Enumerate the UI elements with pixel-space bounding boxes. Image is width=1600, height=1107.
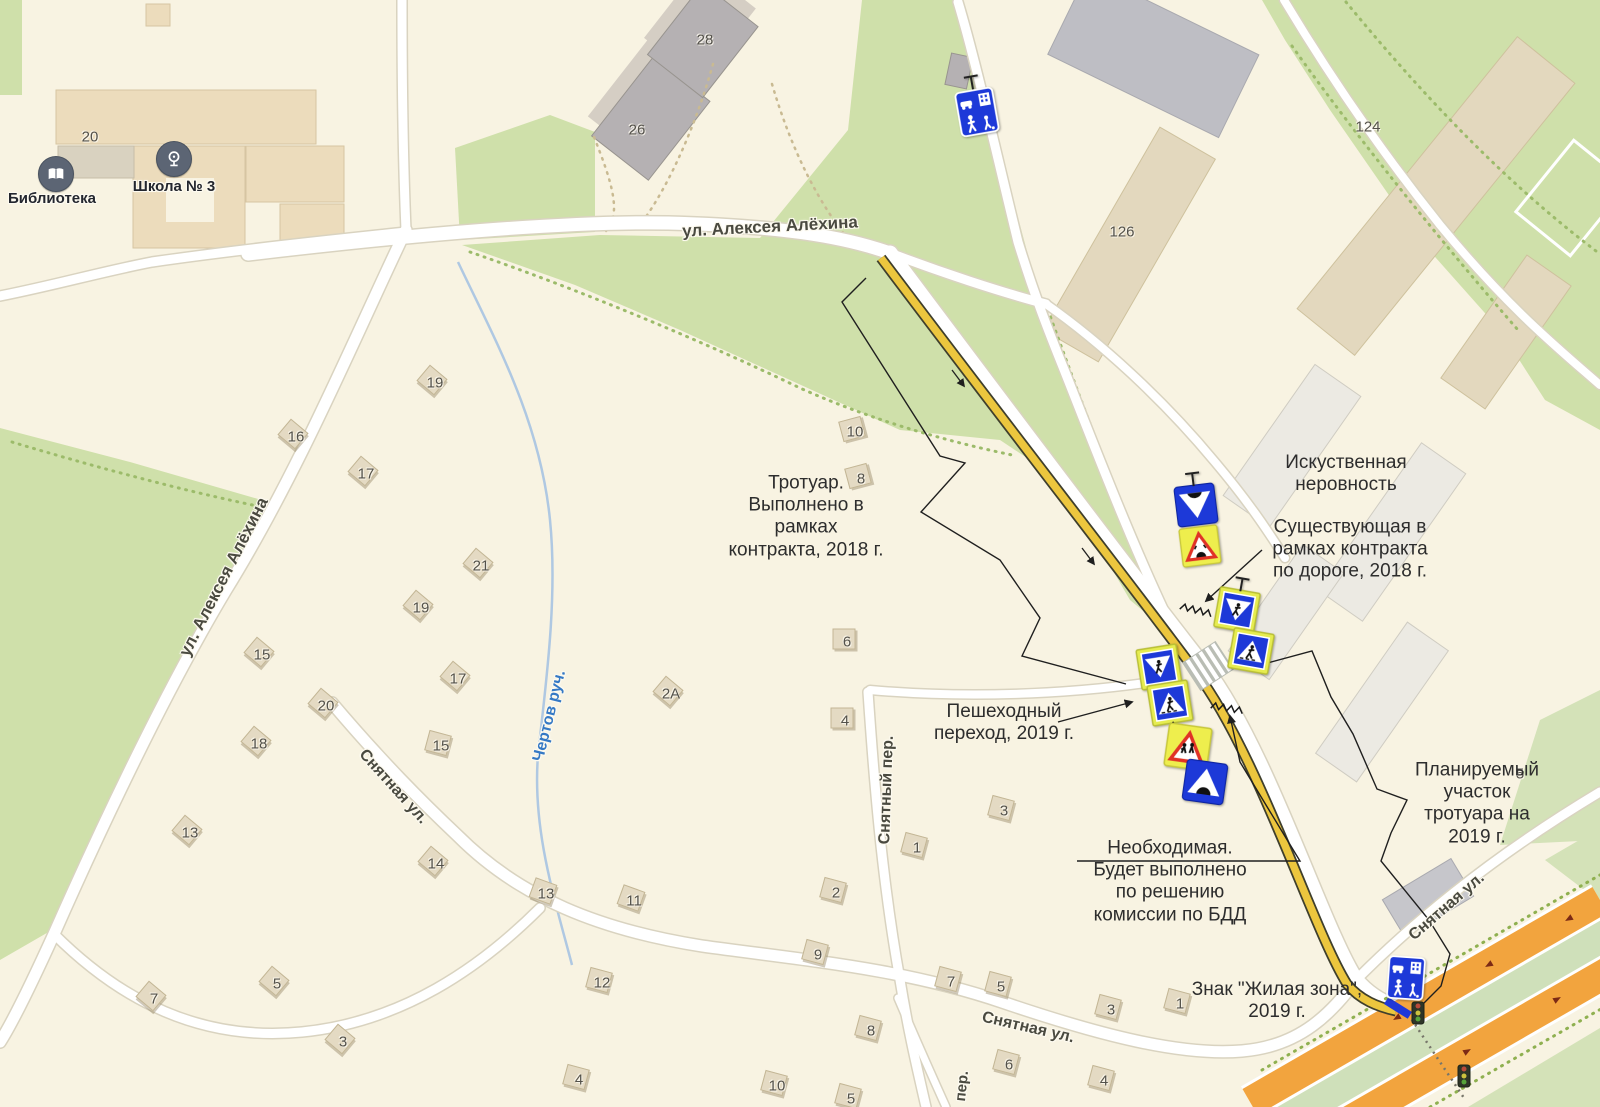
book-icon (45, 163, 67, 185)
school-glyph-icon (163, 148, 185, 170)
library-icon[interactable] (38, 156, 74, 192)
map-base (0, 0, 1600, 1107)
school-icon[interactable] (156, 141, 192, 177)
poi-school-label: Школа № 3 (133, 178, 215, 195)
poi-library-label: Библиотека (8, 190, 96, 207)
map-canvas[interactable]: 2028261241265191617108211915176202А41518… (0, 0, 1600, 1107)
